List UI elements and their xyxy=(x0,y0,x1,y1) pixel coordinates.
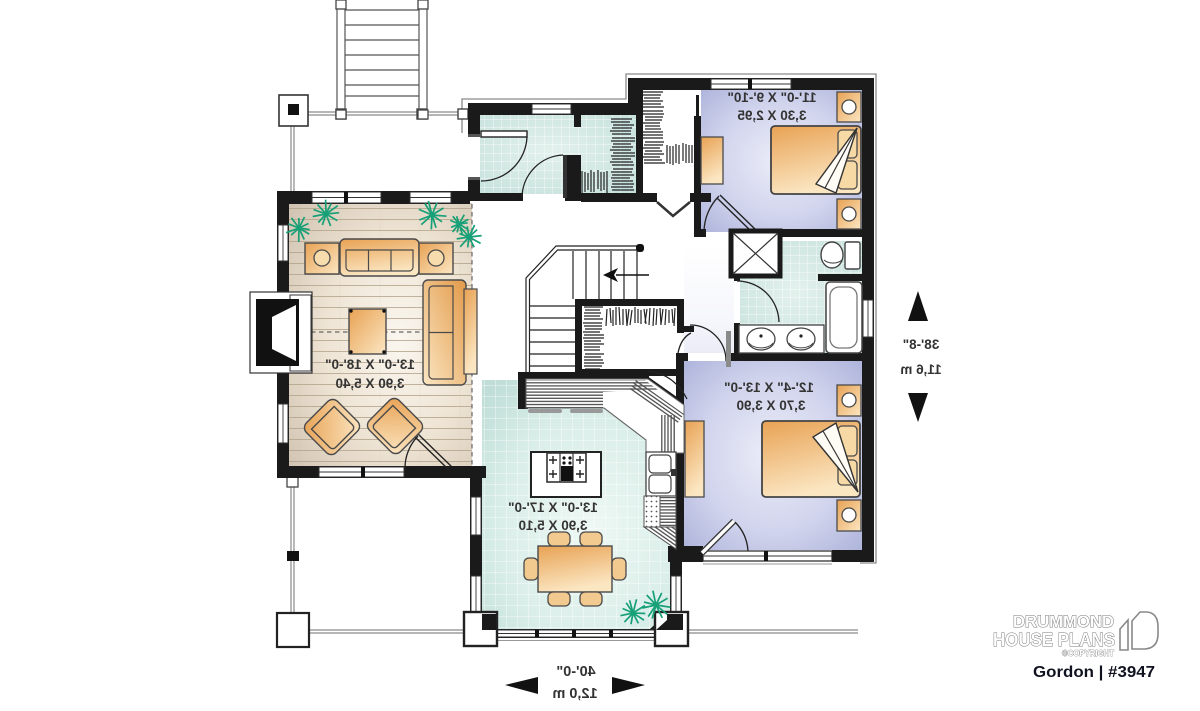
svg-text:3,30 X 2,95: 3,30 X 2,95 xyxy=(737,108,807,123)
svg-text:Gordon | #3947: Gordon | #3947 xyxy=(1033,664,1155,681)
svg-text:13'-0" X 18'-0": 13'-0" X 18'-0" xyxy=(325,357,415,372)
svg-text:11'-0" X 9'-10": 11'-0" X 9'-10" xyxy=(727,90,816,105)
svg-text:3,90 X 5,40: 3,90 X 5,40 xyxy=(335,376,404,391)
svg-text:12'-4" X 13'-0": 12'-4" X 13'-0" xyxy=(724,380,814,395)
svg-text:©COPYRIGHT: ©COPYRIGHT xyxy=(1062,649,1114,658)
svg-text:38'-8": 38'-8" xyxy=(903,337,940,352)
svg-text:3,70 X 3,90: 3,70 X 3,90 xyxy=(736,398,805,413)
svg-text:12,0 m: 12,0 m xyxy=(552,686,597,702)
svg-text:40'-0": 40'-0" xyxy=(556,664,595,680)
svg-text:11,6 m: 11,6 m xyxy=(900,362,941,377)
svg-text:HOUSE PLANS: HOUSE PLANS xyxy=(993,629,1115,650)
svg-text:13'-0" X 17'-0": 13'-0" X 17'-0" xyxy=(508,500,598,515)
svg-text:3,90 X 5,10: 3,90 X 5,10 xyxy=(518,518,587,533)
